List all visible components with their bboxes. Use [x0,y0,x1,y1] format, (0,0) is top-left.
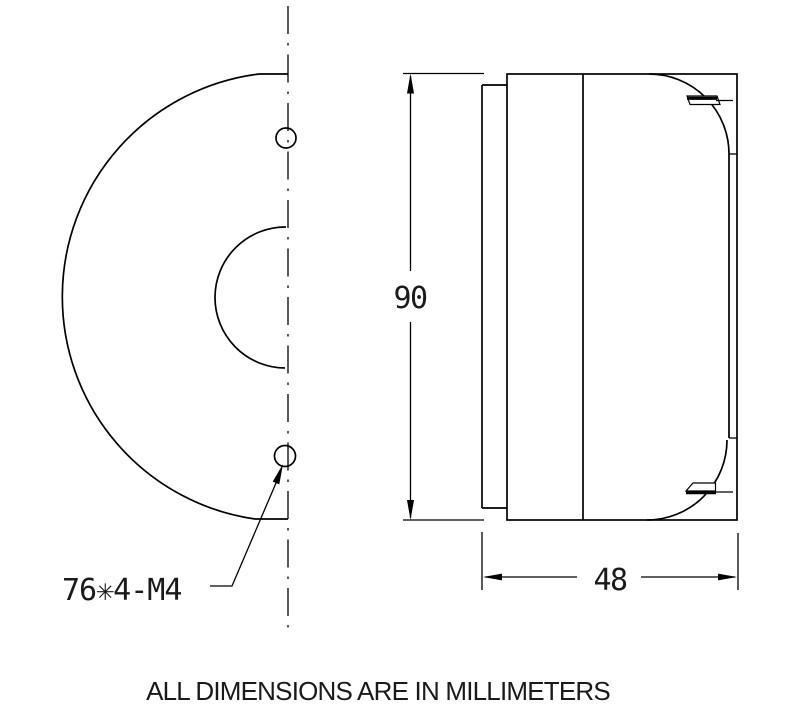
depth-arrowhead-right [718,574,737,581]
units-note: ALL DIMENSIONS ARE IN MILLIMETERS [146,676,610,706]
body-outline [507,74,737,520]
terminal-tab-bottom [686,483,733,493]
mounting-holes-label: 76✳4-M4 [62,573,181,608]
holes-leader-arrowhead [273,464,283,484]
dome-inner-arc [215,227,286,368]
height-arrowhead-bottom [407,500,414,520]
rear-corner-arc-top [649,74,729,154]
side-view [482,74,737,520]
depth-dimension: 48 [482,532,738,598]
terminal-tab-top [687,96,733,105]
height-dimension: 90 [393,74,484,521]
holes-leader-line [210,483,276,586]
faceplate-outer-arc [62,74,259,519]
rear-corner-arc-bottom [647,440,727,520]
mounting-hole-top [276,128,296,148]
mounting-hole-bottom [275,446,296,467]
depth-arrowhead-left [483,574,502,581]
front-view: 76✳4-M4 [62,6,296,628]
depth-dimension-value: 48 [593,563,627,598]
height-dimension-value: 90 [393,281,427,316]
height-arrowhead-top [407,74,414,94]
speaker-dimension-drawing: 76✳4-M4 [0,0,800,713]
terminal-tab-bottom-body [686,483,716,491]
technical-drawing-canvas: 76✳4-M4 [0,0,800,713]
